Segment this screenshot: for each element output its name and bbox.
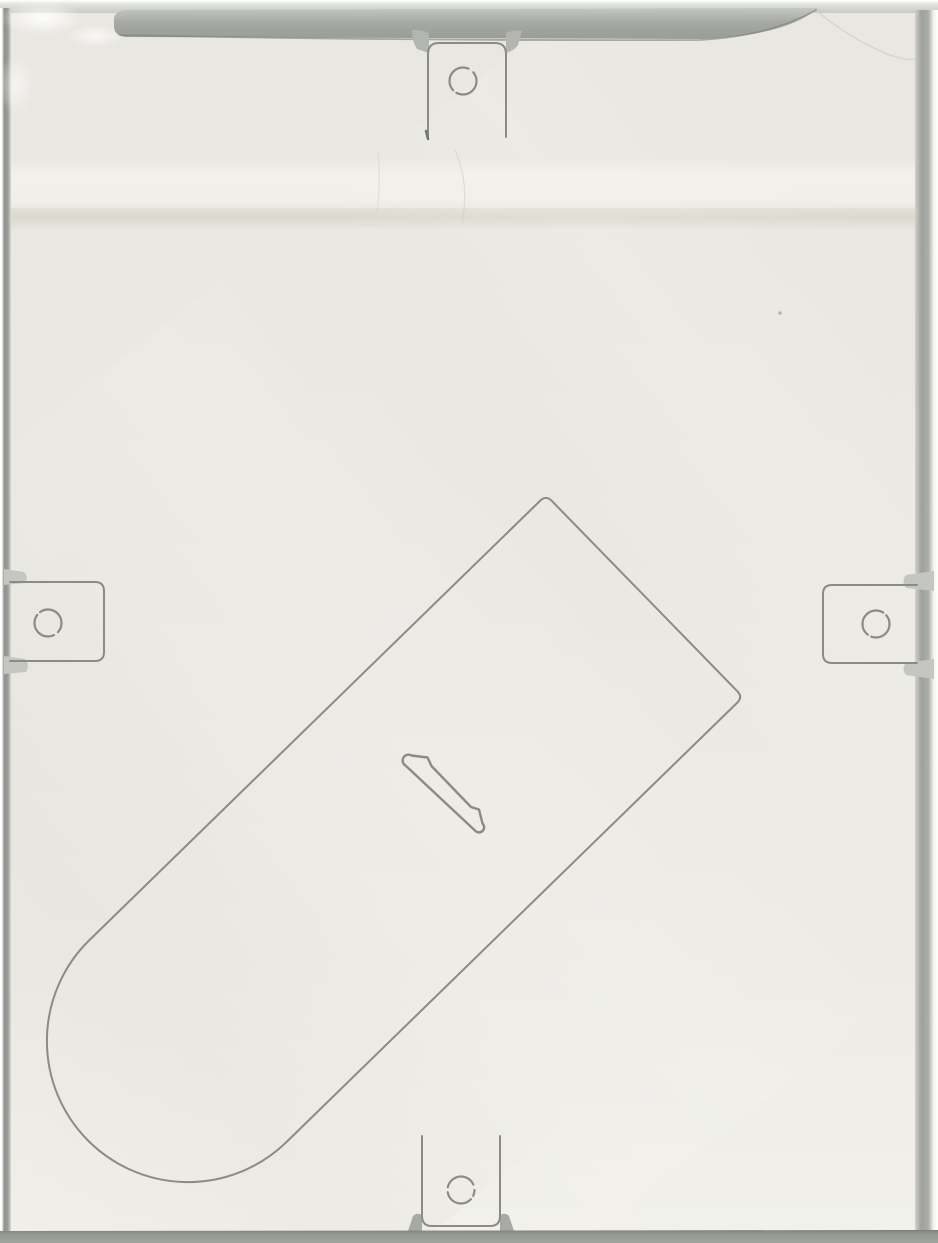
top-tab-flap-right bbox=[506, 30, 522, 53]
wrap-left-edge bbox=[0, 8, 11, 1235]
wrap-crease-right bbox=[818, 12, 915, 60]
left-edge-nub-bottom bbox=[4, 656, 28, 674]
left-tab-hole bbox=[35, 610, 62, 637]
right-tab-hole bbox=[863, 611, 890, 638]
wrap-reflection-band bbox=[10, 158, 916, 210]
hanger-slot-bar bbox=[114, 8, 818, 39]
bottom-tab-cutline bbox=[422, 1136, 500, 1226]
dust-speck-2 bbox=[778, 311, 782, 315]
easel-leg-cutline bbox=[47, 498, 740, 1182]
bottom-tab-nub-left bbox=[407, 1214, 422, 1234]
wrap-top-edge bbox=[0, 0, 938, 13]
bottom-tab-nub-right bbox=[500, 1214, 515, 1234]
right-tab-cutline bbox=[823, 585, 917, 663]
wrap-wrinkle-highlight bbox=[0, 0, 180, 160]
easel-latch-cutline bbox=[403, 755, 484, 833]
photo-shrink-wrapped-easel-back bbox=[0, 0, 938, 1243]
left-edge-nub-top bbox=[4, 569, 27, 585]
top-tab-hole bbox=[450, 68, 477, 95]
left-tab-cutline bbox=[10, 582, 104, 661]
hanger-slot-bar-edge bbox=[120, 10, 816, 40]
dust-speck-1 bbox=[426, 131, 428, 139]
right-edge-nub-bottom bbox=[904, 659, 935, 679]
plastic-wrap-shadow bbox=[0, 385, 748, 1243]
wrap-crease-left bbox=[377, 152, 379, 212]
wrap-crease-center bbox=[455, 150, 465, 222]
cutout-layer bbox=[0, 0, 938, 1243]
plastic-wrap-sheen bbox=[0, 0, 938, 1243]
right-edge-nub-top bbox=[904, 571, 935, 591]
top-tab-cutline bbox=[428, 43, 506, 137]
bottom-tab-hole bbox=[448, 1177, 475, 1204]
backing-board-edge-band bbox=[10, 208, 916, 228]
easel-back-sheet bbox=[10, 12, 916, 1231]
top-tab-flap-left bbox=[412, 30, 429, 53]
wrap-right-edge bbox=[915, 10, 938, 1235]
bottom-bar bbox=[0, 1230, 938, 1243]
